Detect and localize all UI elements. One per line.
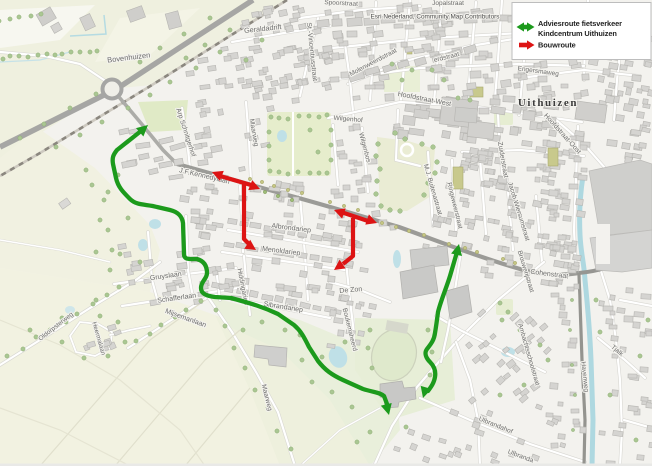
- svg-text:Uithuizen: Uithuizen: [518, 97, 578, 109]
- svg-text:Kindcentrum Uithuizen: Kindcentrum Uithuizen: [538, 29, 617, 38]
- svg-text:Bouwroute: Bouwroute: [538, 41, 576, 50]
- svg-text:Esri Nederland, Community Map: Esri Nederland, Community Map Contributo…: [371, 14, 500, 21]
- svg-text:Jopalstraat: Jopalstraat: [432, 0, 464, 7]
- svg-text:Adviesroute fietsverkeer: Adviesroute fietsverkeer: [538, 19, 622, 28]
